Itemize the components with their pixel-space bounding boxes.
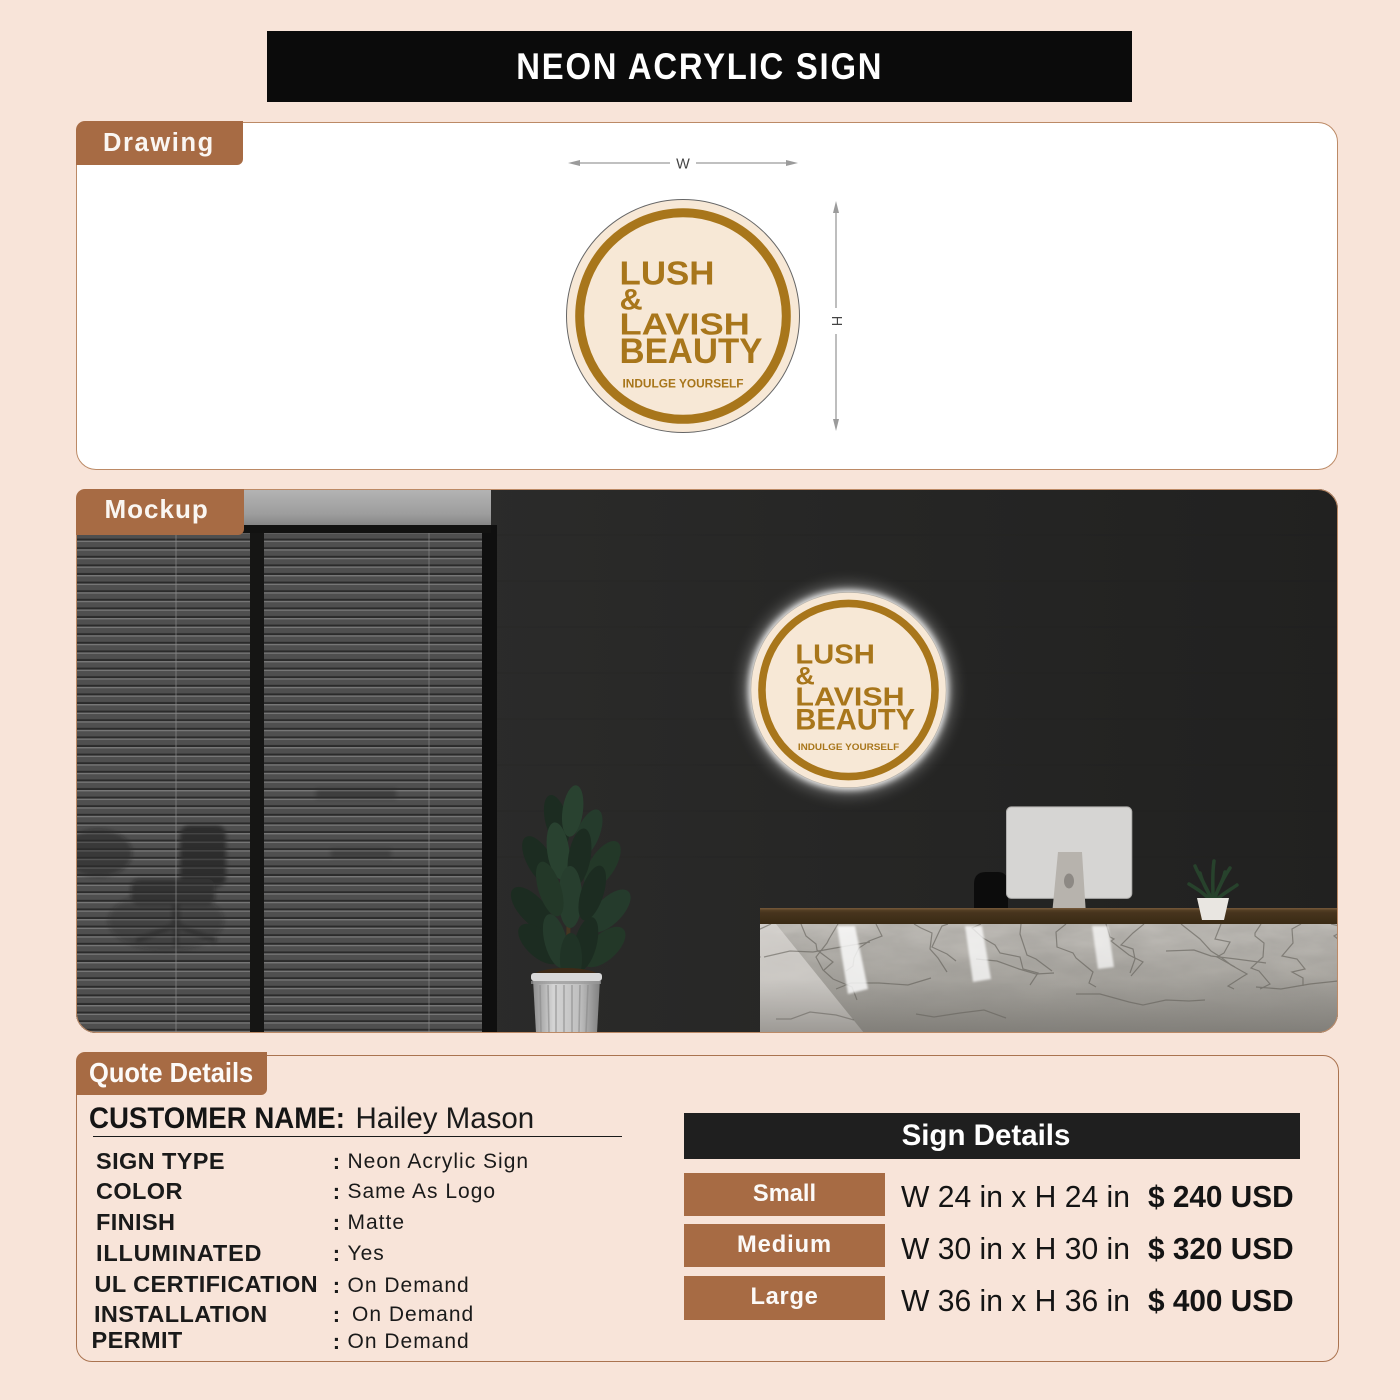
svg-text:BEAUTY: BEAUTY: [620, 332, 763, 371]
svg-text:H: H: [828, 316, 844, 326]
svg-text:INDULGE YOURSELF: INDULGE YOURSELF: [623, 379, 744, 391]
svg-text:W: W: [676, 157, 690, 173]
